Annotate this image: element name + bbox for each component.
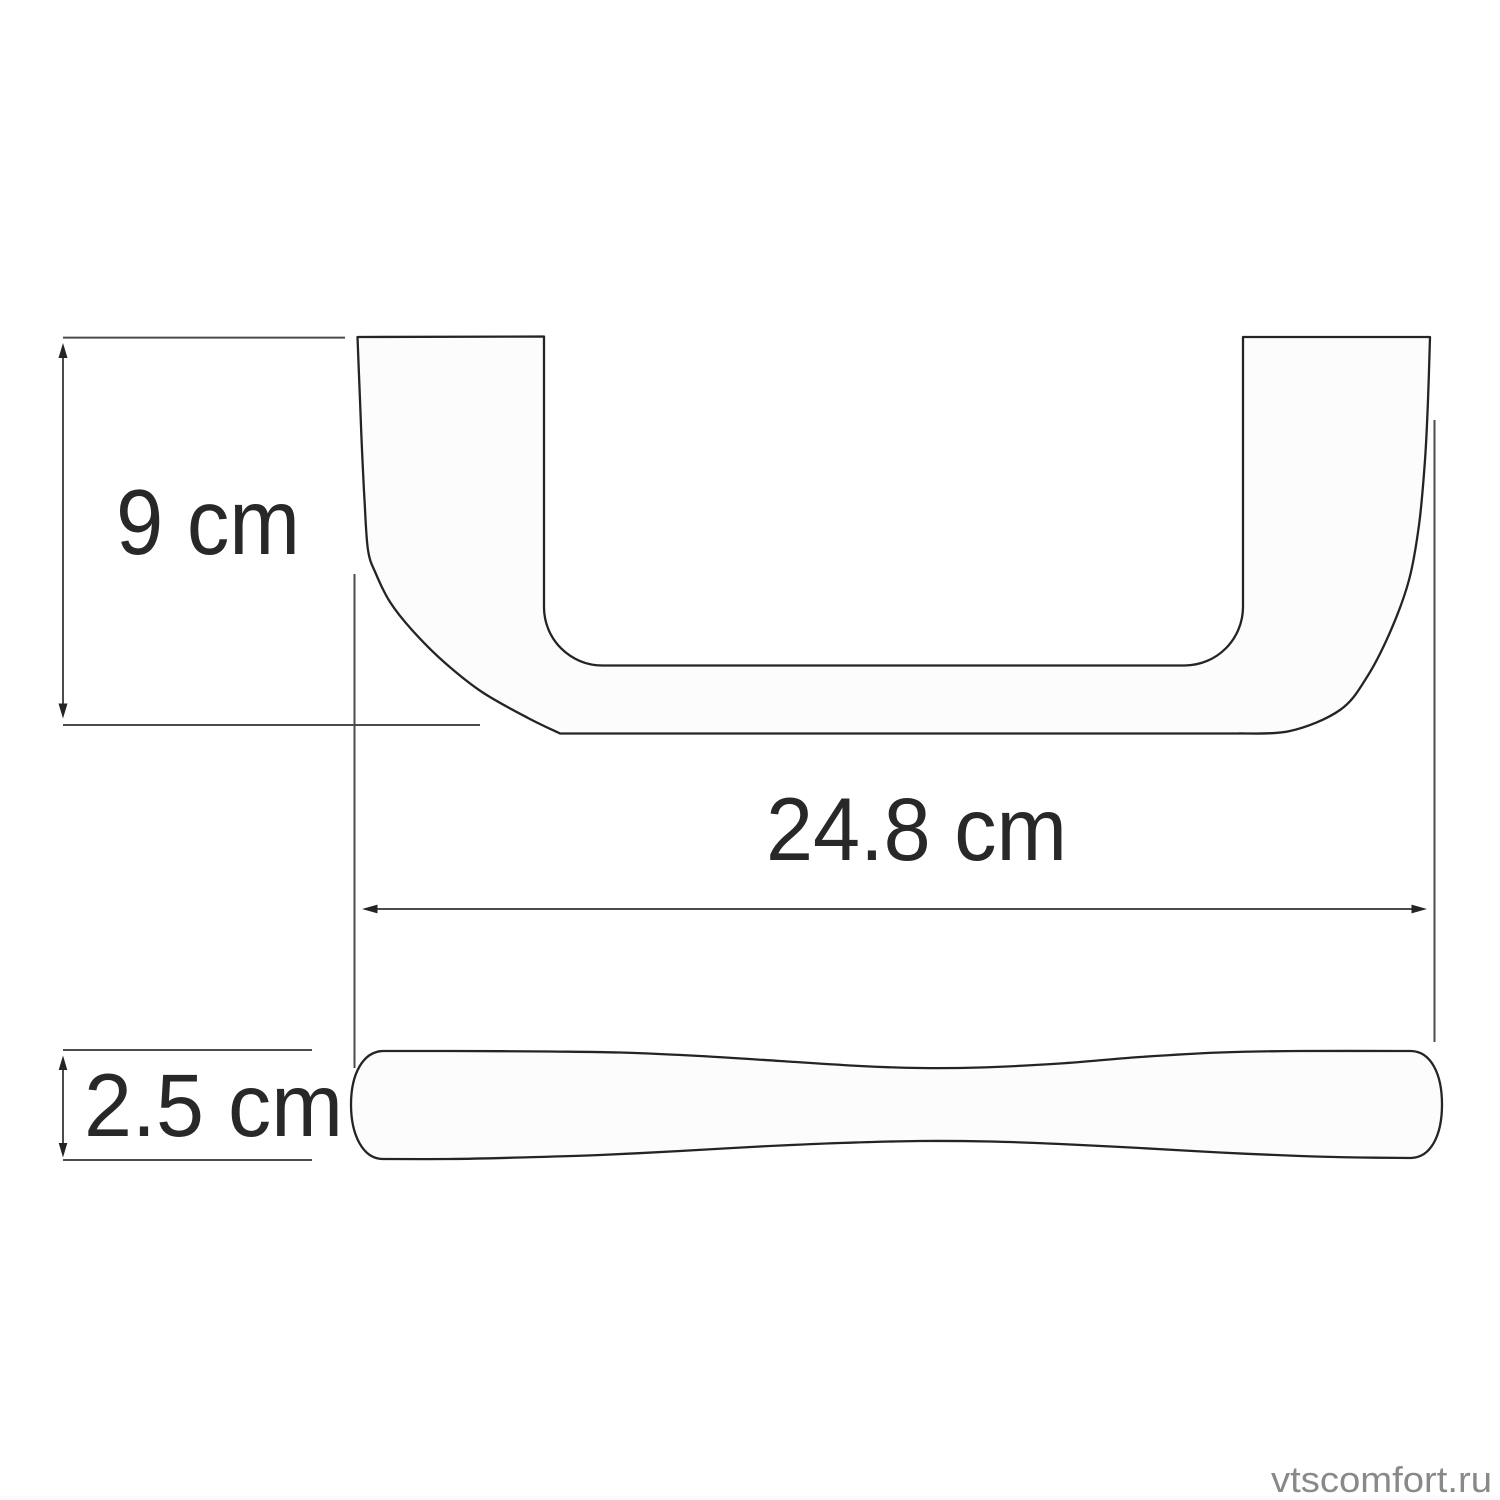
svg-text:9 cm: 9 cm (116, 470, 300, 574)
svg-text:vtscomfort.ru: vtscomfort.ru (1271, 1459, 1492, 1500)
svg-text:24.8 cm: 24.8 cm (766, 779, 1067, 879)
svg-text:2.5 cm: 2.5 cm (84, 1055, 343, 1155)
